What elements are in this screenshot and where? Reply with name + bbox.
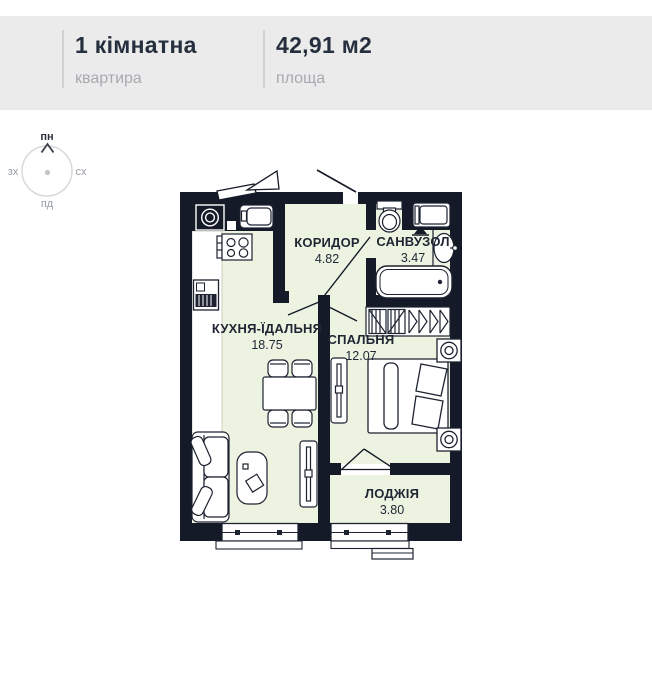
room-label-corridor: КОРИДОР 4.82 — [294, 234, 360, 268]
room-label-kitchen: КУХНЯ-ЇДАЛЬНЯ 18.75 — [212, 320, 322, 354]
bed-icon — [368, 359, 448, 433]
sofa-icon — [189, 432, 229, 522]
wall-bathroom-upper — [366, 204, 376, 230]
room-area-bathroom: 3.47 — [376, 250, 449, 267]
room-name-loggia: ЛОДЖІЯ — [365, 485, 419, 502]
compass-north-label: пн — [40, 131, 53, 143]
loggia-window-icon — [331, 524, 413, 560]
floorplan-page: { "header": { "rooms_count_title": "1 кі… — [0, 0, 652, 687]
compass-rose-icon — [22, 144, 72, 196]
toilet-icon — [377, 201, 402, 232]
compass-east-label: сх — [76, 166, 87, 178]
wall-loggia-left — [318, 463, 341, 475]
room-area-loggia: 3.80 — [365, 502, 419, 519]
room-label-bathroom: САНВУЗОЛ 3.47 — [376, 233, 449, 267]
compass-west-label: зх — [8, 166, 19, 178]
counter-box — [227, 221, 236, 230]
room-label-bedroom: СПАЛЬНЯ 12.07 — [328, 331, 395, 365]
coffee-table-icon — [237, 452, 267, 504]
wall-loggia-right — [390, 463, 462, 475]
room-name-bedroom: СПАЛЬНЯ — [328, 331, 395, 348]
wall-jamb-stub — [273, 291, 289, 303]
nightstand-top-icon — [437, 339, 461, 362]
tv-stand-kitchen-icon — [300, 441, 317, 507]
bath-washer-icon — [413, 203, 450, 227]
tv-stand-bedroom-icon — [331, 358, 347, 423]
room-name-corridor: КОРИДОР — [294, 234, 360, 251]
bathtub-icon — [376, 266, 452, 298]
wall-bathroom-lower — [366, 258, 376, 295]
room-area-corridor: 4.82 — [294, 251, 360, 268]
room-label-loggia: ЛОДЖІЯ 3.80 — [365, 485, 419, 519]
wall-kitchen-corridor — [273, 204, 285, 303]
room-area-kitchen: 18.75 — [212, 337, 322, 354]
radiator-icon — [194, 280, 219, 310]
nightstand-bottom-icon — [437, 428, 461, 451]
stove-icon — [217, 234, 252, 260]
compass-south-label: пд — [41, 198, 53, 210]
wall-left — [180, 192, 192, 541]
room-name-bathroom: САНВУЗОЛ — [376, 233, 449, 250]
kitchen-window-icon — [216, 524, 302, 550]
room-name-kitchen: КУХНЯ-ЇДАЛЬНЯ — [212, 320, 322, 337]
room-area-bedroom: 12.07 — [328, 348, 395, 365]
floorplan-drawing — [0, 0, 652, 687]
kitchen-sink-icon — [240, 205, 273, 228]
loggia-step — [372, 549, 413, 560]
